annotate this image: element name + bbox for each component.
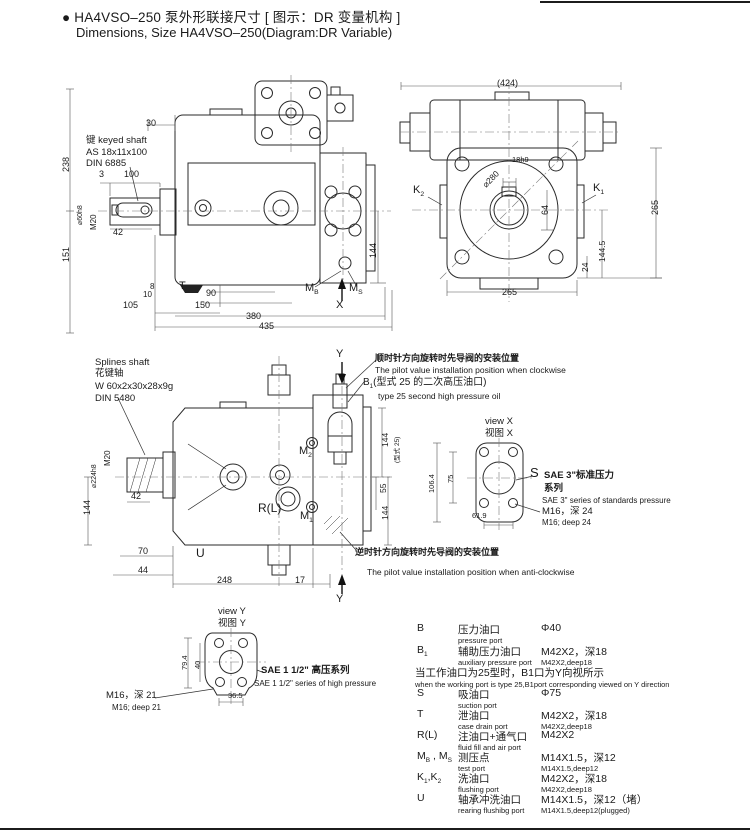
port-value: Φ40 xyxy=(541,622,561,634)
label-view-x-arrow: X xyxy=(336,300,343,312)
dim-150: 150 xyxy=(195,301,210,310)
port-value-main: M42X2，深18 xyxy=(541,644,607,659)
port-name-cn: 测压点 xyxy=(458,750,490,765)
dim-64: 64 xyxy=(541,205,550,215)
label-port-RL: R(L) xyxy=(258,502,281,515)
label-port-T: T xyxy=(179,281,186,293)
housing xyxy=(400,92,616,160)
pilot-valve-B1 xyxy=(324,374,352,534)
dim-44: 44 xyxy=(138,566,148,575)
port-name-cn: 泄油口 xyxy=(458,708,508,723)
label-m16-24-en: M16; deep 24 xyxy=(542,519,591,527)
dim-238: 238 xyxy=(62,157,71,172)
dim-m20-2: M20 xyxy=(104,450,112,466)
dim-90: 90 xyxy=(206,289,216,298)
port-name: 洗油口flushing port xyxy=(458,771,499,794)
label-port-MB: MB xyxy=(305,283,319,295)
port-value: M42X2 xyxy=(541,729,574,741)
label-port-K1: K1 xyxy=(593,183,604,195)
dim-435: 435 xyxy=(259,322,274,331)
dim-30: 30 xyxy=(146,119,156,128)
label-port-B1: B1(型式 25 的二次高压油口) xyxy=(363,378,486,389)
label-view-y-bottom: Y xyxy=(336,594,343,606)
dim-105: 105 xyxy=(123,301,138,310)
dim-144-p3-rt: 144 xyxy=(381,433,390,447)
port-name-cn: 压力油口 xyxy=(458,622,502,637)
port-name: 注油口+通气口fluid fill and air port xyxy=(458,729,527,752)
port-value-main: M14X1.5，深12 xyxy=(541,750,616,765)
port-name: 泄油口case drain port xyxy=(458,708,508,731)
label-view-y-top: Y xyxy=(336,349,343,361)
view-y-title-cn: 视图 Y xyxy=(218,619,246,629)
dim-265-bottom: 265 xyxy=(502,288,517,297)
page-title-en: Dimensions, Size HA4VSO–250(Diagram:DR V… xyxy=(76,25,392,40)
pump-body-outline xyxy=(175,109,320,285)
note-type25-en: type 25 second high pressure oil xyxy=(378,392,500,401)
drawing-view-x-flange xyxy=(425,438,590,548)
label-m16-21-cn: M16，深 21 xyxy=(106,691,157,701)
port-code: U xyxy=(417,792,425,804)
dim-36-5: 36.5 xyxy=(228,692,243,700)
port-name: 吸油口suction port xyxy=(458,687,497,710)
port-name-cn: 轴承冲洗油口 xyxy=(458,792,524,807)
port-value: M42X2，深18M42X2,deep18 xyxy=(541,708,607,731)
dim-55: 55 xyxy=(379,484,388,493)
dim-151: 151 xyxy=(62,247,71,262)
dim-144-p3-rb: 144 xyxy=(381,506,390,520)
port-value: M14X1.5，深12M14X1.5,deep12 xyxy=(541,750,616,773)
view-y-arrow-top xyxy=(338,362,346,384)
dim-424: (424) xyxy=(497,79,518,88)
bottom-border-line xyxy=(0,828,750,830)
port-value: M14X1.5，深12（堵）M14X1.5,deep12(plugged) xyxy=(541,792,647,815)
dim-144-p1-right: 144 xyxy=(369,243,378,258)
port-name: 辅助压力油口auxiliary pressure port xyxy=(458,644,532,667)
control-valve-block xyxy=(255,81,353,145)
port-name-cn: 吸油口 xyxy=(458,687,497,702)
port-name-cn: 洗油口 xyxy=(458,771,499,786)
label-sae112-cn: SAE 1 1/2" 高压系列 xyxy=(261,666,349,676)
port-value-main: M42X2 xyxy=(541,729,574,741)
port-name-en: rearing flushibg port xyxy=(458,806,524,815)
mounting-flange xyxy=(320,153,375,283)
dim-144-5: 144.5 xyxy=(598,241,607,262)
dim-70: 70 xyxy=(138,547,148,556)
view-y-title-en: view Y xyxy=(218,607,246,617)
label-port-M1: M1 xyxy=(300,511,313,523)
dim-61-9: 61.9 xyxy=(472,512,487,520)
label-port-K2: K2 xyxy=(413,185,424,197)
label-m16-24-cn: M16，深 24 xyxy=(542,507,593,517)
pump-body-outline xyxy=(173,402,318,545)
dim-m20: M20 xyxy=(90,214,98,230)
port-name: 轴承冲洗油口rearing flushibg port xyxy=(458,792,524,815)
table-note-row: 当工作油口为25型时，B1口为Y向视所示when the working por… xyxy=(415,665,749,689)
port-code: S xyxy=(417,687,424,699)
dim-100: 100 xyxy=(124,170,139,179)
port-value: M42X2，深18M42X2,deep18 xyxy=(541,644,607,667)
dim-18h9: 18h9 xyxy=(512,156,529,164)
label-splines-shaft-din: DIN 5480 xyxy=(95,394,135,404)
port-code: B xyxy=(417,622,424,634)
port-code: T xyxy=(417,708,423,720)
port-name: 测压点test port xyxy=(458,750,490,773)
label-port-M2: M2 xyxy=(299,446,312,458)
dim-42-2: 42 xyxy=(131,492,141,501)
port-value: Φ75 xyxy=(541,687,561,699)
note-clockwise-cn: 顺时针方向旋转时先导阀的安装位置 xyxy=(375,354,519,363)
dim-shaft-dia: ⌀60h8 xyxy=(77,205,84,225)
port-value-main: M14X1.5，深12（堵） xyxy=(541,792,647,807)
dim-75: 75 xyxy=(447,475,455,483)
note-anticlockwise-en: The pilot value installation position wh… xyxy=(367,568,574,577)
view-x-title-en: view X xyxy=(485,417,513,427)
leader-lines xyxy=(130,167,357,287)
port-value-main: M42X2，深18 xyxy=(541,708,607,723)
port-code: MB , MS xyxy=(417,750,452,762)
port-code: R(L) xyxy=(417,729,437,741)
port-value-sub: M14X1.5,deep12(plugged) xyxy=(541,806,647,815)
label-keyed-shaft-spec: AS 18x11x100 xyxy=(86,148,147,158)
port-code: K1,K2 xyxy=(417,771,441,783)
port-value: M42X2，深18M42X2,deep18 xyxy=(541,771,607,794)
label-port-MS: MS xyxy=(349,283,363,295)
label-splines-shaft-spec: W 60x2x30x28x9g xyxy=(95,382,173,392)
dim-24: 24 xyxy=(581,263,590,272)
view-x-title-cn: 视图 X xyxy=(485,429,513,439)
dim-40: 40 xyxy=(194,661,202,669)
label-keyed-shaft-din: DIN 6885 xyxy=(86,159,126,169)
port-name-cn: 辅助压力油口 xyxy=(458,644,532,659)
label-port-S: S xyxy=(530,466,539,480)
label-type25: (型式 25) xyxy=(395,437,402,463)
port-value-main: M42X2，深18 xyxy=(541,771,607,786)
port-code: B1 xyxy=(417,644,428,656)
leader-lines xyxy=(515,476,540,512)
dim-224: ⌀224h8 xyxy=(91,464,98,488)
label-keyed-shaft: 键 keyed shaft xyxy=(86,136,147,146)
label-m16-21-en: M16; deep 21 xyxy=(112,704,161,712)
dim-3: 3 xyxy=(99,170,104,179)
dim-79-4: 79.4 xyxy=(181,655,189,670)
dim-265-right: 265 xyxy=(651,200,660,215)
label-sae3-en: SAE 3" series of standards pressure xyxy=(542,497,671,505)
drawing-side-view-keyed-shaft xyxy=(60,75,395,340)
dim-10: 10 xyxy=(143,291,152,299)
flange-square xyxy=(440,148,584,289)
note-anticlockwise-cn: 逆时针方向旋转时先导阀的安装位置 xyxy=(355,548,499,557)
note-clockwise-en: The pilot value installation position wh… xyxy=(375,366,566,375)
view-x-direction-arrow xyxy=(338,278,346,301)
label-sae3-cn2: 系列 xyxy=(544,484,563,494)
port-value-main: Φ75 xyxy=(541,687,561,699)
dim-144-p3-left: 144 xyxy=(83,500,92,515)
top-border-line xyxy=(540,1,750,3)
dim-106-4: 106.4 xyxy=(428,474,436,493)
dim-17: 17 xyxy=(295,576,305,585)
valve-block xyxy=(268,365,371,575)
label-splines-shaft-en: Splines shaft xyxy=(95,358,149,368)
note-cn: 当工作油口为25型时，B1口为Y向视所示 xyxy=(415,665,749,680)
port-name-cn: 注油口+通气口 xyxy=(458,729,527,744)
dim-248: 248 xyxy=(217,576,232,585)
label-port-U: U xyxy=(196,547,205,560)
view-y-arrow-bottom xyxy=(338,574,346,594)
port-value-main: Φ40 xyxy=(541,622,561,634)
page-title-cn: ● HA4VSO–250 泵外形联接尺寸 [ 图示：DR 变量机构 ] xyxy=(62,6,400,26)
label-sae112-en: SAE 1 1/2" series of high pressure xyxy=(254,680,376,688)
dim-42: 42 xyxy=(113,228,123,237)
label-splines-shaft-cn: 花键轴 xyxy=(95,369,124,379)
drawing-front-view xyxy=(400,78,745,313)
catalog-page: ● HA4VSO–250 泵外形联接尺寸 [ 图示：DR 变量机构 ] Dime… xyxy=(0,0,750,832)
port-name: 压力油口pressure port xyxy=(458,622,502,645)
label-sae3-cn1: SAE 3"标准压力 xyxy=(544,471,614,481)
